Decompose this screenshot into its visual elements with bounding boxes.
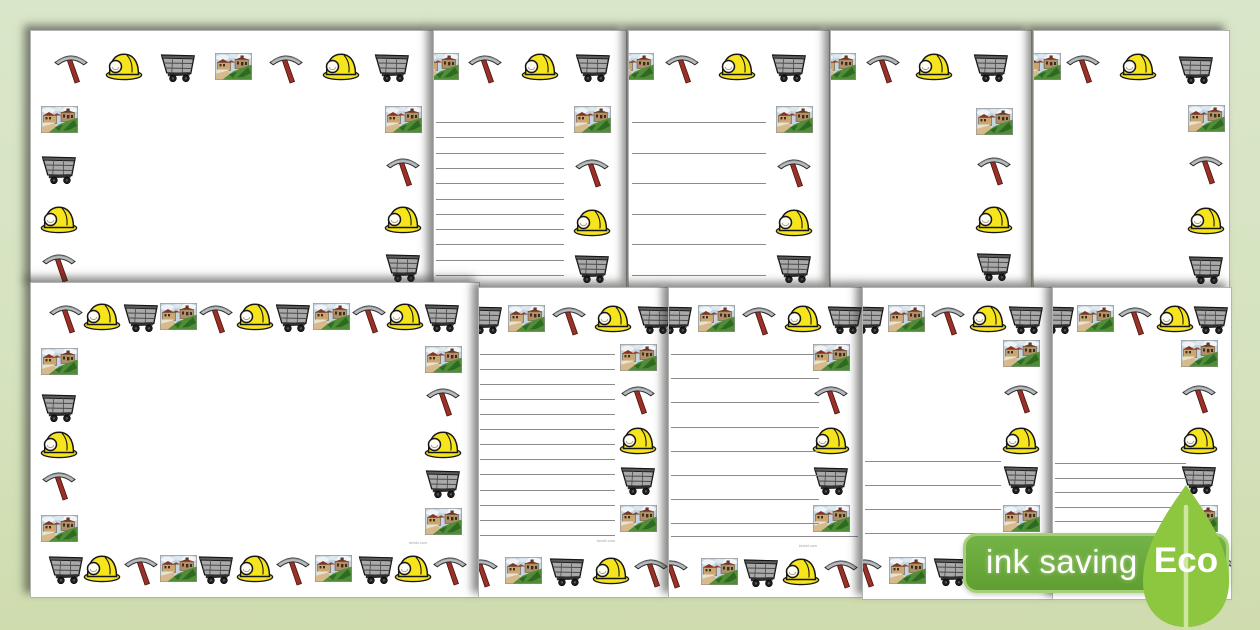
colliery-scene-icon xyxy=(813,505,850,532)
mine-cart-icon xyxy=(159,50,197,82)
mining-helmet-icon xyxy=(83,553,121,583)
mining-helmet-icon xyxy=(1187,205,1225,235)
page-portrait-wide-lined: twinkl.com xyxy=(668,287,863,598)
colliery-scene-icon xyxy=(385,106,422,133)
resource-preview-canvas: twinkl.comtwinkl.comtwinkl.com ink savin… xyxy=(0,0,1260,630)
pickaxe-icon xyxy=(813,379,849,415)
pickaxe-icon xyxy=(776,152,812,188)
colliery-scene-icon xyxy=(313,303,350,330)
mining-helmet-icon xyxy=(40,429,78,459)
page-portrait-wide-lined-top xyxy=(628,30,830,288)
mining-helmet-icon xyxy=(782,556,820,586)
colliery-scene-icon xyxy=(698,305,735,332)
mine-cart-icon xyxy=(742,555,780,587)
colliery-scene-icon xyxy=(830,53,856,80)
pickaxe-icon xyxy=(668,553,689,589)
mine-cart-icon xyxy=(548,554,586,586)
pickaxe-icon xyxy=(467,48,503,84)
colliery-scene-icon xyxy=(41,106,78,133)
writing-line xyxy=(632,214,766,215)
mining-helmet-icon xyxy=(1180,425,1218,455)
writing-line xyxy=(436,183,564,184)
mine-cart-icon xyxy=(1177,52,1215,84)
colliery-scene-icon xyxy=(315,555,352,582)
colliery-scene-icon xyxy=(425,508,462,535)
mine-cart-icon xyxy=(47,552,85,584)
mine-cart-icon xyxy=(274,300,312,332)
mine-cart-icon xyxy=(40,390,78,422)
writing-line xyxy=(436,199,564,200)
writing-line xyxy=(671,427,819,428)
mining-helmet-icon xyxy=(394,553,432,583)
pickaxe-icon xyxy=(664,48,700,84)
pickaxe-icon xyxy=(620,379,656,415)
mine-cart-icon xyxy=(478,302,504,334)
colliery-scene-icon xyxy=(41,348,78,375)
writing-line xyxy=(671,499,819,500)
ink-saving-badge: ink saving Eco xyxy=(963,533,1229,593)
colliery-scene-icon xyxy=(433,53,459,80)
writing-line xyxy=(671,378,819,379)
writing-line xyxy=(480,459,615,460)
mining-helmet-icon xyxy=(384,204,422,234)
page-portrait-blank-top-1 xyxy=(830,30,1032,288)
mine-cart-icon xyxy=(668,302,694,334)
colliery-scene-icon xyxy=(889,557,926,584)
mining-helmet-icon xyxy=(975,204,1013,234)
colliery-scene-icon xyxy=(813,344,850,371)
writing-line xyxy=(480,384,615,385)
writing-line xyxy=(436,153,564,154)
writing-line xyxy=(671,536,858,537)
mining-helmet-icon xyxy=(592,555,630,585)
pickaxe-icon xyxy=(976,150,1012,186)
writing-line xyxy=(480,535,615,536)
writing-line xyxy=(632,244,766,245)
mine-cart-icon xyxy=(373,50,411,82)
colliery-scene-icon xyxy=(1003,340,1040,367)
mining-helmet-icon xyxy=(386,301,424,331)
writing-line xyxy=(436,214,564,215)
mining-helmet-icon xyxy=(40,204,78,234)
writing-line xyxy=(436,168,564,169)
mine-cart-icon xyxy=(770,50,808,82)
pickaxe-icon xyxy=(865,48,901,84)
writing-line xyxy=(480,505,615,506)
mine-cart-icon xyxy=(775,251,813,283)
colliery-scene-icon xyxy=(215,53,252,80)
pickaxe-icon xyxy=(268,48,304,84)
writing-line xyxy=(671,354,819,355)
mining-helmet-icon xyxy=(619,425,657,455)
colliery-scene-icon xyxy=(41,515,78,542)
mine-cart-icon xyxy=(122,300,160,332)
pickaxe-icon xyxy=(551,300,587,336)
colliery-scene-icon xyxy=(888,305,925,332)
mine-cart-icon xyxy=(197,552,235,584)
mine-cart-icon xyxy=(423,300,461,332)
mining-helmet-icon xyxy=(1156,303,1194,333)
colliery-scene-icon xyxy=(776,106,813,133)
colliery-scene-icon xyxy=(1003,505,1040,532)
mine-cart-icon xyxy=(972,50,1010,82)
pickaxe-icon xyxy=(633,552,669,588)
writing-line xyxy=(632,122,766,123)
writing-line xyxy=(632,153,766,154)
mining-helmet-icon xyxy=(915,51,953,81)
mine-cart-icon xyxy=(574,50,612,82)
watermark-text: twinkl.com xyxy=(409,541,427,545)
writing-line xyxy=(436,275,564,276)
pickaxe-icon xyxy=(425,381,461,417)
pickaxe-icon xyxy=(1117,300,1153,336)
page-portrait-blank-top-2 xyxy=(1033,30,1230,288)
mining-helmet-icon xyxy=(1119,51,1157,81)
mine-cart-icon xyxy=(826,302,863,334)
pickaxe-icon xyxy=(275,550,311,586)
mine-cart-icon xyxy=(384,250,422,282)
pickaxe-icon xyxy=(741,300,777,336)
writing-line xyxy=(480,414,615,415)
mining-helmet-icon xyxy=(573,207,611,237)
writing-line xyxy=(671,451,819,452)
colliery-scene-icon xyxy=(620,344,657,371)
pickaxe-icon xyxy=(351,298,387,334)
pickaxe-icon xyxy=(1003,378,1039,414)
colliery-scene-icon xyxy=(160,555,197,582)
pickaxe-icon xyxy=(478,552,499,588)
mine-cart-icon xyxy=(1187,252,1225,284)
mine-cart-icon xyxy=(1052,302,1076,334)
page-portrait-narrow-lined: twinkl.com xyxy=(478,287,669,598)
writing-line xyxy=(480,399,615,400)
mine-cart-icon xyxy=(812,463,850,495)
writing-line xyxy=(436,229,564,230)
page-portrait-narrow-lined-top xyxy=(433,30,627,288)
colliery-scene-icon xyxy=(1033,53,1061,80)
mine-cart-icon xyxy=(1192,302,1230,334)
watermark-text: twinkl.com xyxy=(799,544,817,548)
mining-helmet-icon xyxy=(236,553,274,583)
mining-helmet-icon xyxy=(784,303,822,333)
writing-line xyxy=(480,354,615,355)
colliery-scene-icon xyxy=(1077,305,1114,332)
pickaxe-icon xyxy=(1065,48,1101,84)
mining-helmet-icon xyxy=(236,301,274,331)
pickaxe-icon xyxy=(41,247,77,283)
writing-line xyxy=(480,369,615,370)
pickaxe-icon xyxy=(1188,149,1224,185)
eco-label: Eco xyxy=(1131,541,1241,581)
writing-line xyxy=(865,509,1001,510)
pickaxe-icon xyxy=(41,465,77,501)
mining-helmet-icon xyxy=(775,207,813,237)
writing-line xyxy=(671,475,819,476)
writing-line xyxy=(865,461,1001,462)
colliery-scene-icon xyxy=(425,346,462,373)
writing-line xyxy=(436,244,564,245)
writing-line xyxy=(671,523,819,524)
writing-line xyxy=(480,429,615,430)
colliery-scene-icon xyxy=(574,106,611,133)
pickaxe-icon xyxy=(53,48,89,84)
pickaxe-icon xyxy=(432,550,468,586)
mining-helmet-icon xyxy=(521,51,559,81)
colliery-scene-icon xyxy=(1188,105,1225,132)
pickaxe-icon xyxy=(1181,378,1217,414)
writing-line xyxy=(480,474,615,475)
mine-cart-icon xyxy=(1002,462,1040,494)
pickaxe-icon xyxy=(862,552,883,588)
colliery-scene-icon xyxy=(160,303,197,330)
pickaxe-icon xyxy=(198,298,234,334)
writing-line xyxy=(632,275,766,276)
mine-cart-icon xyxy=(619,463,657,495)
mine-cart-icon xyxy=(424,466,462,498)
pickaxe-icon xyxy=(385,151,421,187)
pickaxe-icon xyxy=(123,550,159,586)
colliery-scene-icon xyxy=(1181,340,1218,367)
mine-cart-icon xyxy=(40,152,78,184)
page-landscape-border-blank: twinkl.com xyxy=(30,282,480,598)
mining-helmet-icon xyxy=(594,303,632,333)
colliery-scene-icon xyxy=(505,557,542,584)
pickaxe-icon xyxy=(930,300,966,336)
colliery-scene-icon xyxy=(701,558,738,585)
colliery-scene-icon xyxy=(620,505,657,532)
mining-helmet-icon xyxy=(83,301,121,331)
mine-cart-icon xyxy=(862,302,886,334)
writing-line xyxy=(436,137,564,138)
page-landscape-border-blank-top xyxy=(30,30,434,287)
mine-cart-icon xyxy=(975,249,1013,281)
mine-cart-icon xyxy=(573,251,611,283)
writing-line xyxy=(480,490,615,491)
pickaxe-icon xyxy=(823,553,859,589)
writing-line xyxy=(1055,478,1186,479)
writing-line xyxy=(480,520,615,521)
writing-line xyxy=(1055,463,1186,464)
writing-line xyxy=(671,402,819,403)
mining-helmet-icon xyxy=(969,303,1007,333)
writing-line xyxy=(436,260,564,261)
mining-helmet-icon xyxy=(424,429,462,459)
writing-line xyxy=(632,183,766,184)
ink-saving-label: ink saving xyxy=(986,543,1138,581)
writing-line xyxy=(480,444,615,445)
mining-helmet-icon xyxy=(1002,425,1040,455)
pickaxe-icon xyxy=(48,298,84,334)
colliery-scene-icon xyxy=(508,305,545,332)
watermark-text: twinkl.com xyxy=(597,539,615,543)
writing-line xyxy=(865,485,1001,486)
mining-helmet-icon xyxy=(105,51,143,81)
pickaxe-icon xyxy=(574,152,610,188)
colliery-scene-icon xyxy=(628,53,654,80)
mine-cart-icon xyxy=(636,302,669,334)
mining-helmet-icon xyxy=(322,51,360,81)
mine-cart-icon xyxy=(357,552,395,584)
mine-cart-icon xyxy=(1007,302,1045,334)
mining-helmet-icon xyxy=(718,51,756,81)
writing-line xyxy=(436,122,564,123)
colliery-scene-icon xyxy=(976,108,1013,135)
